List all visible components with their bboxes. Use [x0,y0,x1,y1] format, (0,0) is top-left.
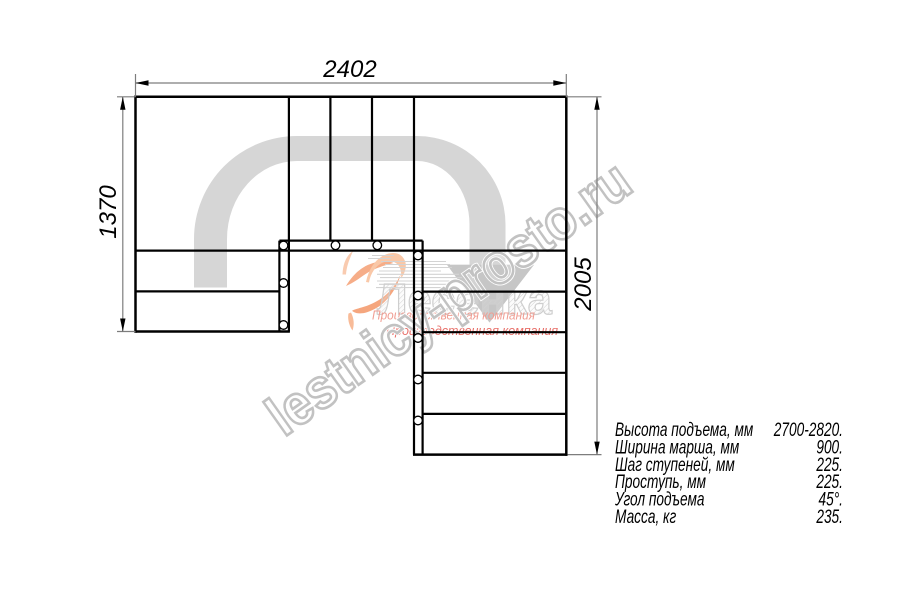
svg-text:2402: 2402 [322,56,376,83]
svg-text:235.: 235. [816,506,843,528]
svg-text:Масса, кг: Масса, кг [615,506,676,528]
svg-text:2005: 2005 [570,257,597,312]
svg-text:1370: 1370 [95,185,122,239]
